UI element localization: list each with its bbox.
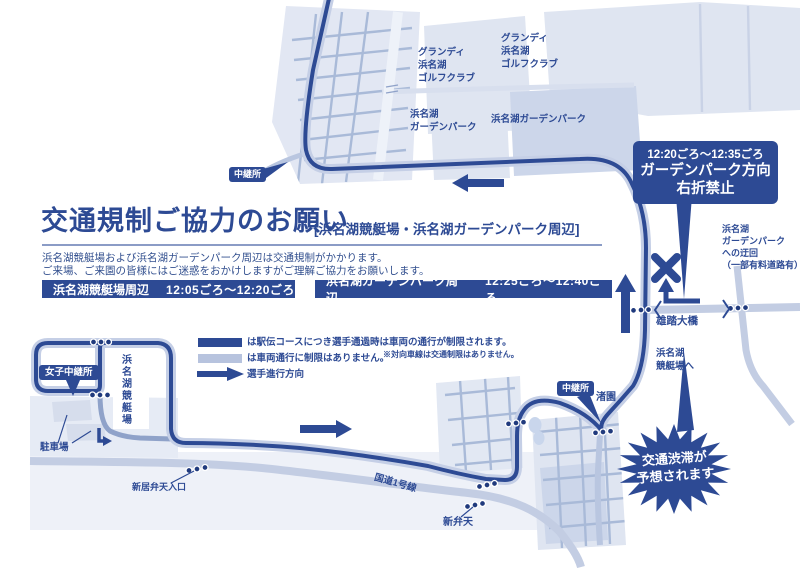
label-benten-entrance: 新居弁天入口: [132, 481, 186, 493]
restriction-callout-pointer: [676, 196, 692, 299]
label-garden-park-1: 浜名湖 ガーデンパーク: [410, 109, 477, 135]
label-golf-club-1: グランディ 浜名湖 ゴルフクラブ: [418, 47, 475, 85]
page-title: 交通規制ご協力のお願い: [41, 203, 349, 239]
legend-normal-text: は車両通行に制限はありません。: [247, 350, 389, 364]
legend-course-swatch: [198, 338, 242, 347]
label-golf-club-2: グランディ 浜名湖 ゴルフクラブ: [501, 33, 558, 71]
label-shinbenten: 新弁天: [443, 516, 473, 530]
page-subtitle: [浜名湖競艇場・浜名湖ガーデンパーク周辺]: [314, 221, 580, 239]
label-detour: 浜名湖 ガーデンパーク への迂回 （一部有料道路有）: [722, 223, 800, 272]
label-garden-park-2: 浜名湖ガーデンパーク: [491, 114, 586, 127]
traffic-signal-icon: [631, 307, 652, 314]
time-bar-label: 浜名湖競艇場周辺: [53, 281, 149, 298]
time-bar-time: 12:25ごろ〜12:40ごろ: [485, 272, 612, 306]
label-parking: 駐車場: [40, 442, 69, 455]
legend-note: ※対向車線は交通制限はありません。: [383, 349, 519, 360]
relay-top-callout: 中継所: [229, 167, 266, 182]
restriction-line1: ガーデンパーク方向: [635, 162, 776, 180]
restriction-line2: 右折禁止: [635, 180, 776, 198]
time-bar-boat-race: 浜名湖競艇場周辺 12:05ごろ〜12:20ごろ: [42, 280, 295, 298]
traffic-signal-icon: [91, 339, 112, 345]
congestion-text: 交通渋滞が 予想されます: [628, 448, 722, 488]
label-nagisaen: 渚園: [596, 391, 616, 405]
detour-road: [737, 266, 792, 424]
no-right-turn-x-icon: [655, 257, 677, 279]
traffic-signal-icon: [506, 419, 527, 427]
traffic-signal-icon: [728, 305, 749, 312]
women-relay-callout: 女子中継所: [39, 365, 99, 380]
restriction-time: 12:20ごろ〜12:35ごろ: [635, 146, 776, 162]
relay-mid-callout: 中継所: [557, 381, 594, 396]
legend-course-text: は駅伝コースにつき選手通過時は車両の通行が制限されます。: [247, 334, 512, 348]
traffic-signal-icon: [90, 392, 111, 398]
time-bar-time: 12:05ごろ〜12:20ごろ: [166, 281, 295, 298]
course-up-arrow-icon: [615, 274, 636, 333]
traffic-signal-icon: [593, 428, 614, 436]
time-bar-garden-park: 浜名湖ガーデンパーク周辺 12:25ごろ〜12:40ごろ: [315, 280, 612, 298]
label-to-boat-race: 浜名湖 競艇場へ: [656, 348, 694, 374]
yuto-bridge-road: [646, 307, 800, 310]
legend-normal-swatch: [198, 354, 242, 363]
pond: [529, 417, 542, 433]
right-turn-restriction-callout: 12:20ごろ〜12:35ごろ ガーデンパーク方向 右折禁止: [633, 141, 778, 204]
traffic-regulation-map-page: 交通規制ご協力のお願い [浜名湖競艇場・浜名湖ガーデンパーク周辺] 浜名湖競艇場…: [0, 0, 800, 568]
label-boat-race-stadium: 浜名湖競艇場: [118, 354, 132, 432]
time-bar-label: 浜名湖ガーデンパーク周辺: [326, 272, 468, 306]
legend-direction-text: 選手進行方向: [247, 366, 304, 380]
label-yuto-bridge: 雄踏大橋: [656, 314, 698, 328]
legend-direction-arrow-icon: [197, 367, 245, 381]
title-rule: [42, 244, 602, 246]
course-right-arrow-icon: [300, 420, 352, 438]
